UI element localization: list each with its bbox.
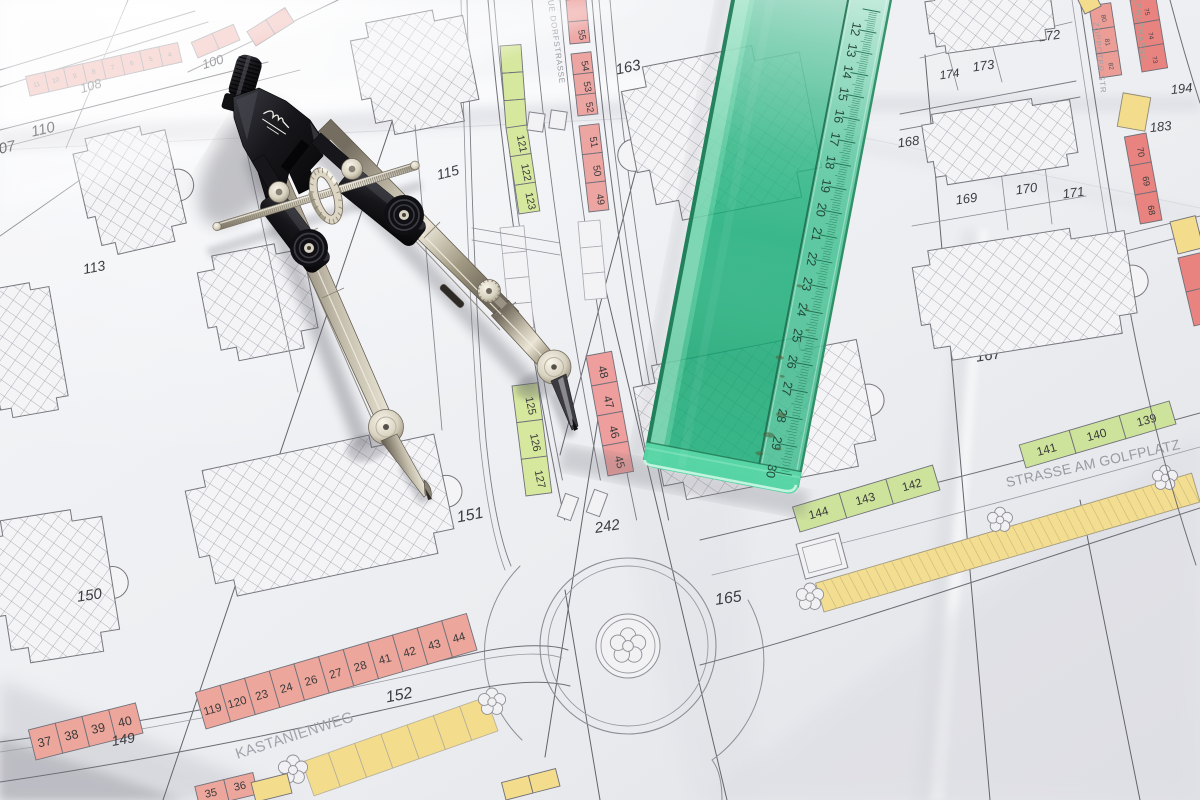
svg-text:55: 55 [575, 29, 588, 41]
svg-text:171: 171 [1062, 184, 1086, 202]
svg-text:173: 173 [972, 57, 996, 75]
svg-text:12: 12 [848, 21, 864, 37]
svg-text:21: 21 [808, 226, 824, 242]
svg-text:23: 23 [799, 276, 815, 292]
svg-text:22: 22 [804, 251, 820, 267]
svg-text:20: 20 [813, 202, 829, 218]
svg-text:169: 169 [955, 190, 979, 208]
svg-text:53: 53 [581, 81, 594, 93]
svg-text:27: 27 [779, 380, 795, 396]
svg-text:14: 14 [839, 64, 855, 80]
svg-text:194: 194 [1170, 80, 1193, 97]
svg-text:18: 18 [822, 154, 838, 170]
svg-text:26: 26 [784, 354, 800, 370]
svg-text:35: 35 [204, 787, 218, 800]
svg-text:16: 16 [831, 108, 847, 124]
svg-text:19: 19 [818, 178, 834, 194]
svg-text:15: 15 [835, 86, 851, 102]
svg-text:52: 52 [583, 101, 596, 113]
svg-text:150: 150 [76, 585, 104, 605]
svg-text:54: 54 [578, 60, 591, 72]
svg-text:13: 13 [843, 42, 859, 58]
svg-text:68: 68 [1146, 204, 1158, 216]
svg-text:183: 183 [1149, 118, 1173, 135]
svg-text:170: 170 [1015, 180, 1039, 198]
svg-text:69: 69 [1140, 175, 1152, 187]
svg-text:174: 174 [939, 66, 961, 83]
svg-text:17: 17 [827, 131, 843, 147]
svg-text:36: 36 [233, 780, 247, 794]
svg-text:25: 25 [789, 327, 805, 343]
svg-text:70: 70 [1135, 146, 1147, 158]
svg-text:168: 168 [897, 133, 921, 151]
svg-text:30: 30 [763, 463, 779, 479]
